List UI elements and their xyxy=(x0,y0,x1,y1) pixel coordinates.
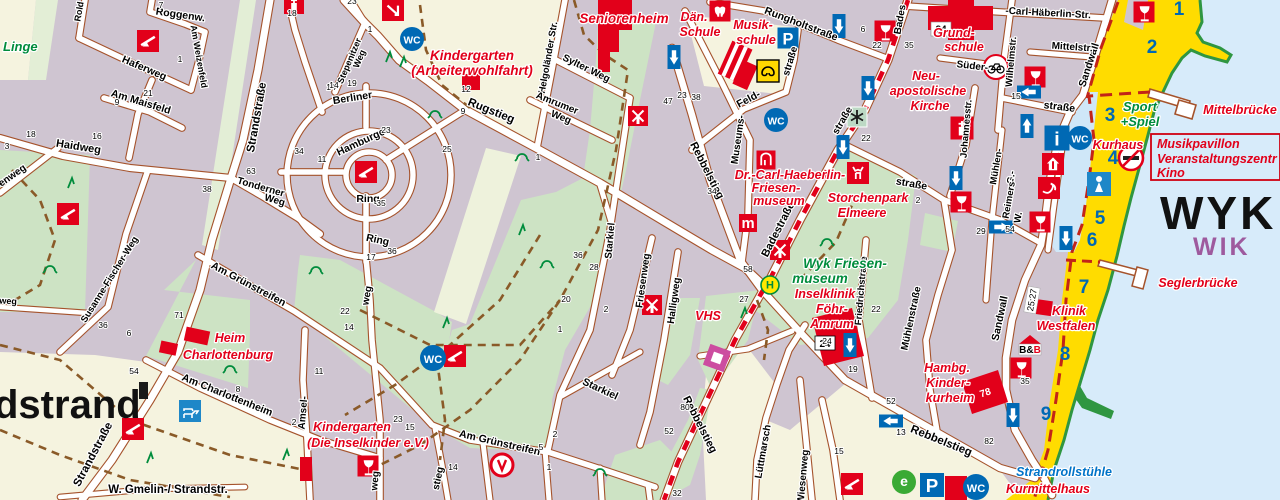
svg-text:P: P xyxy=(783,30,794,48)
svg-text:(Arbeiterwohlfahrt): (Arbeiterwohlfahrt) xyxy=(411,63,533,78)
svg-text:dstrand: dstrand xyxy=(0,383,141,427)
svg-text:8: 8 xyxy=(1060,344,1071,365)
svg-text:Sport: Sport xyxy=(1123,99,1158,114)
svg-text:7: 7 xyxy=(159,0,164,10)
svg-text:23: 23 xyxy=(381,125,391,135)
svg-text:Kindergarten: Kindergarten xyxy=(313,420,391,434)
svg-text:14: 14 xyxy=(329,80,339,90)
svg-text:1: 1 xyxy=(1174,0,1185,20)
svg-text:15: 15 xyxy=(405,422,415,432)
svg-text:WC: WC xyxy=(424,354,442,366)
svg-text:24: 24 xyxy=(822,336,832,346)
svg-text:28: 28 xyxy=(589,262,599,272)
svg-text:Musikpavillon: Musikpavillon xyxy=(1157,137,1240,151)
svg-text:22: 22 xyxy=(861,133,871,143)
svg-text:9: 9 xyxy=(461,106,466,116)
svg-text:Inselklinik: Inselklinik xyxy=(795,287,856,301)
svg-text:Schule: Schule xyxy=(680,25,721,39)
svg-text:32: 32 xyxy=(672,488,682,498)
svg-text:Dän.: Dän. xyxy=(680,10,707,24)
svg-text:63: 63 xyxy=(246,166,256,176)
svg-text:i: i xyxy=(1054,129,1059,151)
svg-text:3: 3 xyxy=(1105,105,1116,126)
svg-text:Heim: Heim xyxy=(215,331,246,345)
svg-text:35: 35 xyxy=(1020,376,1030,386)
svg-text:21: 21 xyxy=(143,88,153,98)
svg-text:18: 18 xyxy=(287,8,297,18)
svg-text:Kindergarten: Kindergarten xyxy=(430,48,514,63)
svg-text:34: 34 xyxy=(294,146,304,156)
svg-text:22: 22 xyxy=(340,306,350,316)
svg-text:52: 52 xyxy=(664,426,674,436)
svg-text:18: 18 xyxy=(26,129,36,139)
svg-text:22: 22 xyxy=(872,40,882,50)
svg-text:Elmeere: Elmeere xyxy=(838,206,887,220)
svg-text:WIK: WIK xyxy=(1193,233,1251,261)
svg-text:Amrum: Amrum xyxy=(809,317,854,331)
svg-text:W.: W. xyxy=(1012,211,1025,224)
svg-text:2: 2 xyxy=(916,195,921,205)
svg-text:38: 38 xyxy=(202,184,212,194)
svg-text:schule: schule xyxy=(944,40,984,54)
svg-text:1: 1 xyxy=(558,324,563,334)
svg-text:27: 27 xyxy=(739,294,749,304)
svg-text:15: 15 xyxy=(1011,91,1021,101)
svg-text:71: 71 xyxy=(174,310,184,320)
svg-text:15: 15 xyxy=(834,446,844,456)
svg-text:3: 3 xyxy=(5,141,10,151)
svg-text:23: 23 xyxy=(393,414,403,424)
svg-text:Kinder-: Kinder- xyxy=(926,376,970,390)
svg-text:29: 29 xyxy=(976,226,986,236)
svg-text:+Spiel: +Spiel xyxy=(1121,114,1160,129)
svg-text:Wyk Friesen-: Wyk Friesen- xyxy=(803,256,887,271)
svg-text:8: 8 xyxy=(236,384,241,394)
svg-text:82: 82 xyxy=(984,436,994,446)
svg-text:museum: museum xyxy=(753,194,804,208)
svg-text:Föhr-: Föhr- xyxy=(816,302,848,316)
svg-text:6: 6 xyxy=(127,328,132,338)
svg-text:58: 58 xyxy=(743,264,753,274)
svg-text:Seniorenheim: Seniorenheim xyxy=(579,11,668,26)
svg-text:1: 1 xyxy=(178,54,183,64)
svg-text:17: 17 xyxy=(366,252,376,262)
svg-text:2: 2 xyxy=(292,417,297,427)
svg-text:19: 19 xyxy=(347,78,357,88)
svg-text:Friesen-: Friesen- xyxy=(752,181,801,195)
svg-text:5: 5 xyxy=(1095,208,1106,229)
svg-text:6: 6 xyxy=(1087,230,1098,251)
svg-text:Charlottenburg: Charlottenburg xyxy=(183,348,274,362)
svg-text:20: 20 xyxy=(561,294,571,304)
svg-text:36: 36 xyxy=(98,320,108,330)
svg-text:23: 23 xyxy=(677,90,687,100)
svg-text:Klinik: Klinik xyxy=(1052,304,1087,318)
svg-text:5: 5 xyxy=(539,442,544,452)
svg-text:Hambg.: Hambg. xyxy=(924,361,970,375)
svg-text:WC: WC xyxy=(768,117,786,128)
svg-text:Musik-: Musik- xyxy=(733,18,773,32)
svg-text:kurheim: kurheim xyxy=(926,391,975,405)
svg-text:VHS: VHS xyxy=(695,309,721,323)
svg-text:11: 11 xyxy=(315,366,324,376)
svg-text:52: 52 xyxy=(886,396,896,406)
svg-text:35: 35 xyxy=(376,198,386,208)
svg-text:WC: WC xyxy=(404,36,422,47)
svg-text:Kino: Kino xyxy=(1157,166,1185,180)
svg-text:Veranstaltungszentr: Veranstaltungszentr xyxy=(1157,152,1278,166)
svg-text:14: 14 xyxy=(448,462,458,472)
svg-text:WC: WC xyxy=(967,483,985,495)
svg-text:Seglerbrücke: Seglerbrücke xyxy=(1158,276,1237,290)
svg-text:2: 2 xyxy=(553,429,558,439)
svg-text:54: 54 xyxy=(1005,224,1015,234)
svg-text:B&B: B&B xyxy=(1019,345,1041,356)
svg-text:13: 13 xyxy=(896,427,906,437)
svg-text:1: 1 xyxy=(368,24,373,34)
svg-text:6: 6 xyxy=(861,24,866,34)
svg-text:14: 14 xyxy=(344,322,354,332)
svg-text:m: m xyxy=(741,216,754,232)
svg-text:54: 54 xyxy=(129,366,139,376)
svg-text:1: 1 xyxy=(536,152,541,162)
svg-text:museum: museum xyxy=(792,271,848,286)
svg-text:11: 11 xyxy=(318,154,327,164)
svg-text:Neu-: Neu- xyxy=(912,69,940,83)
svg-text:19: 19 xyxy=(848,364,858,374)
svg-text:4: 4 xyxy=(1108,148,1119,169)
svg-text:36: 36 xyxy=(573,250,583,260)
svg-text:Grund-: Grund- xyxy=(933,26,975,40)
svg-text:Storchenpark: Storchenpark xyxy=(828,191,910,205)
svg-text:38: 38 xyxy=(691,92,701,102)
svg-text:47: 47 xyxy=(663,96,673,106)
svg-text:7: 7 xyxy=(1079,277,1090,298)
svg-text:WC: WC xyxy=(1072,135,1090,146)
svg-text:9: 9 xyxy=(1041,404,1052,425)
svg-text:Mittelbrücke: Mittelbrücke xyxy=(1203,103,1277,117)
svg-text:Westfalen: Westfalen xyxy=(1037,319,1096,333)
svg-text:16: 16 xyxy=(92,131,102,141)
svg-text:Kirche: Kirche xyxy=(911,99,950,113)
svg-text:22: 22 xyxy=(871,304,881,314)
svg-text:2: 2 xyxy=(604,304,609,314)
svg-text:1: 1 xyxy=(547,462,552,472)
svg-text:WYK: WYK xyxy=(1160,187,1276,239)
svg-text:P: P xyxy=(926,475,938,496)
svg-text:Strandrollstühle: Strandrollstühle xyxy=(1016,465,1112,479)
svg-text:Dr.-Carl-Haeberlin-: Dr.-Carl-Haeberlin- xyxy=(735,168,845,182)
svg-text:2: 2 xyxy=(1147,37,1158,58)
svg-text:12: 12 xyxy=(461,84,471,94)
svg-text:Kurmittelhaus: Kurmittelhaus xyxy=(1006,482,1090,496)
svg-text:Linge: Linge xyxy=(3,39,38,54)
svg-text:W. Gmelin-/ Strandstr.: W. Gmelin-/ Strandstr. xyxy=(108,484,228,496)
svg-text:schule: schule xyxy=(736,33,776,47)
svg-text:9: 9 xyxy=(115,97,120,107)
svg-text:apostolische: apostolische xyxy=(890,84,966,98)
svg-text:H: H xyxy=(766,280,774,292)
svg-text:34: 34 xyxy=(707,186,717,196)
svg-text:36: 36 xyxy=(387,246,397,256)
svg-text:weg: weg xyxy=(0,296,17,307)
svg-text:e: e xyxy=(900,473,908,489)
svg-text:25: 25 xyxy=(442,144,452,154)
svg-text:(Die Inselkinder e.V.): (Die Inselkinder e.V.) xyxy=(307,436,429,450)
svg-text:80: 80 xyxy=(680,402,690,412)
svg-text:weg: weg xyxy=(369,471,382,492)
svg-text:35: 35 xyxy=(904,40,914,50)
svg-text:23: 23 xyxy=(347,0,357,6)
